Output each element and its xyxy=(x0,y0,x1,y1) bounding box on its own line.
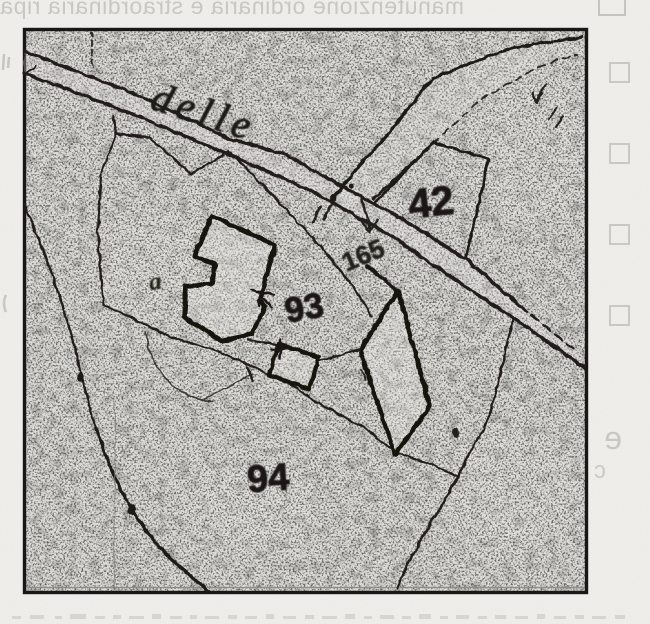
svg-text:94: 94 xyxy=(246,456,291,501)
svg-text:manutenzione ordinaria e strao: manutenzione ordinaria e straordinaria r… xyxy=(0,0,464,19)
svg-text:e: e xyxy=(604,420,622,456)
svg-text:93: 93 xyxy=(282,286,327,331)
svg-text:42: 42 xyxy=(406,177,456,228)
svg-text:c: c xyxy=(594,457,606,484)
